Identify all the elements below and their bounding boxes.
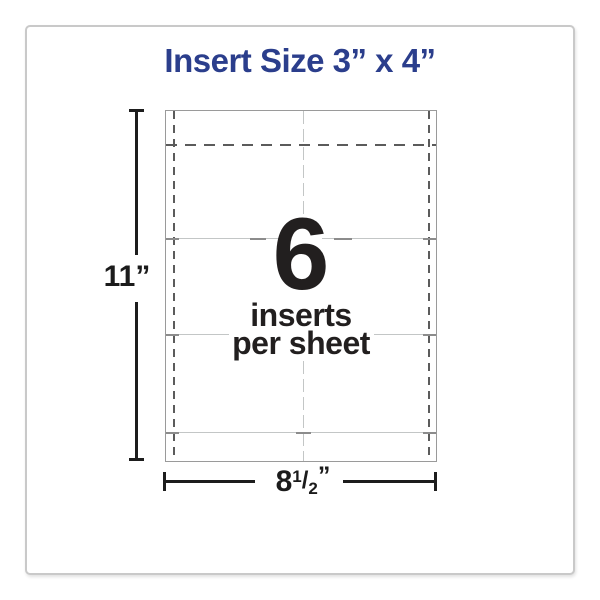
diagram-title: Insert Size 3” x 4” xyxy=(0,42,600,80)
height-dimension-line-upper xyxy=(135,109,138,255)
inserts-count: 6 xyxy=(165,215,437,293)
width-dimension-line-left xyxy=(163,480,255,483)
height-dimension-cap-bottom xyxy=(129,458,144,461)
width-fraction-denominator: 2 xyxy=(308,479,317,498)
width-fraction-numerator: 1 xyxy=(292,467,301,486)
width-dimension-line-right xyxy=(343,480,437,483)
width-dimension-label: 81/2” xyxy=(253,467,353,501)
height-dimension-line-lower xyxy=(135,302,138,460)
center-cut-line-bottom xyxy=(303,361,304,461)
tick-mark xyxy=(296,432,311,434)
width-whole-number: 8 xyxy=(276,465,293,498)
height-dimension-label: 11” xyxy=(95,262,159,292)
tick-mark xyxy=(166,432,179,434)
perforation-line-top xyxy=(166,144,436,146)
inserts-caption-line2: per sheet xyxy=(165,328,437,358)
product-diagram-card: Insert Size 3” x 4” 6 inserts per sheet … xyxy=(0,0,600,600)
width-dimension-cap-right xyxy=(434,472,437,491)
tick-mark xyxy=(423,432,436,434)
width-unit-mark: ” xyxy=(318,462,331,490)
